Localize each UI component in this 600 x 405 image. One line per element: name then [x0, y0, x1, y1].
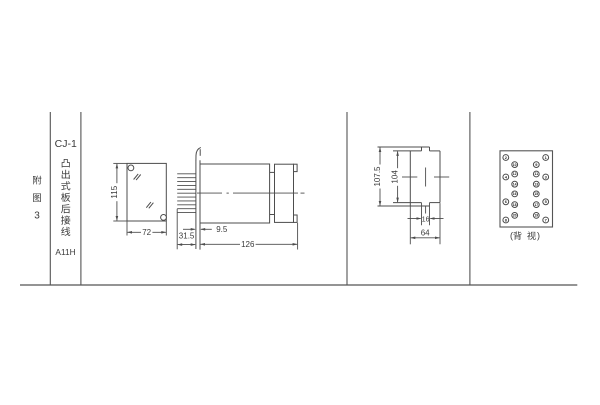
svg-text:11: 11 [535, 172, 539, 176]
svg-text:A11H: A11H [55, 247, 75, 257]
svg-text:10: 10 [513, 163, 517, 167]
svg-text:3: 3 [34, 211, 40, 222]
svg-text:31.5: 31.5 [179, 232, 195, 241]
svg-text:14: 14 [513, 182, 517, 186]
svg-text:64: 64 [421, 228, 430, 237]
svg-text:CJ-1: CJ-1 [55, 138, 77, 150]
svg-text:16: 16 [422, 214, 430, 223]
svg-text:12: 12 [513, 172, 517, 176]
svg-text:7: 7 [545, 217, 547, 222]
svg-text:107.5: 107.5 [373, 166, 382, 187]
svg-text:20: 20 [513, 214, 517, 218]
svg-text:19: 19 [534, 214, 538, 218]
svg-text:15: 15 [534, 192, 538, 196]
svg-text:126: 126 [241, 240, 255, 249]
svg-text:): ) [537, 231, 540, 241]
svg-text:18: 18 [513, 203, 517, 207]
svg-text:(: ( [510, 231, 513, 241]
svg-text:115: 115 [110, 185, 119, 198]
svg-text:13: 13 [534, 182, 538, 186]
svg-text:16: 16 [513, 192, 517, 196]
svg-text:17: 17 [534, 203, 538, 207]
svg-text:9.5: 9.5 [216, 225, 228, 234]
svg-text:72: 72 [142, 228, 151, 237]
svg-text:104: 104 [391, 170, 400, 184]
